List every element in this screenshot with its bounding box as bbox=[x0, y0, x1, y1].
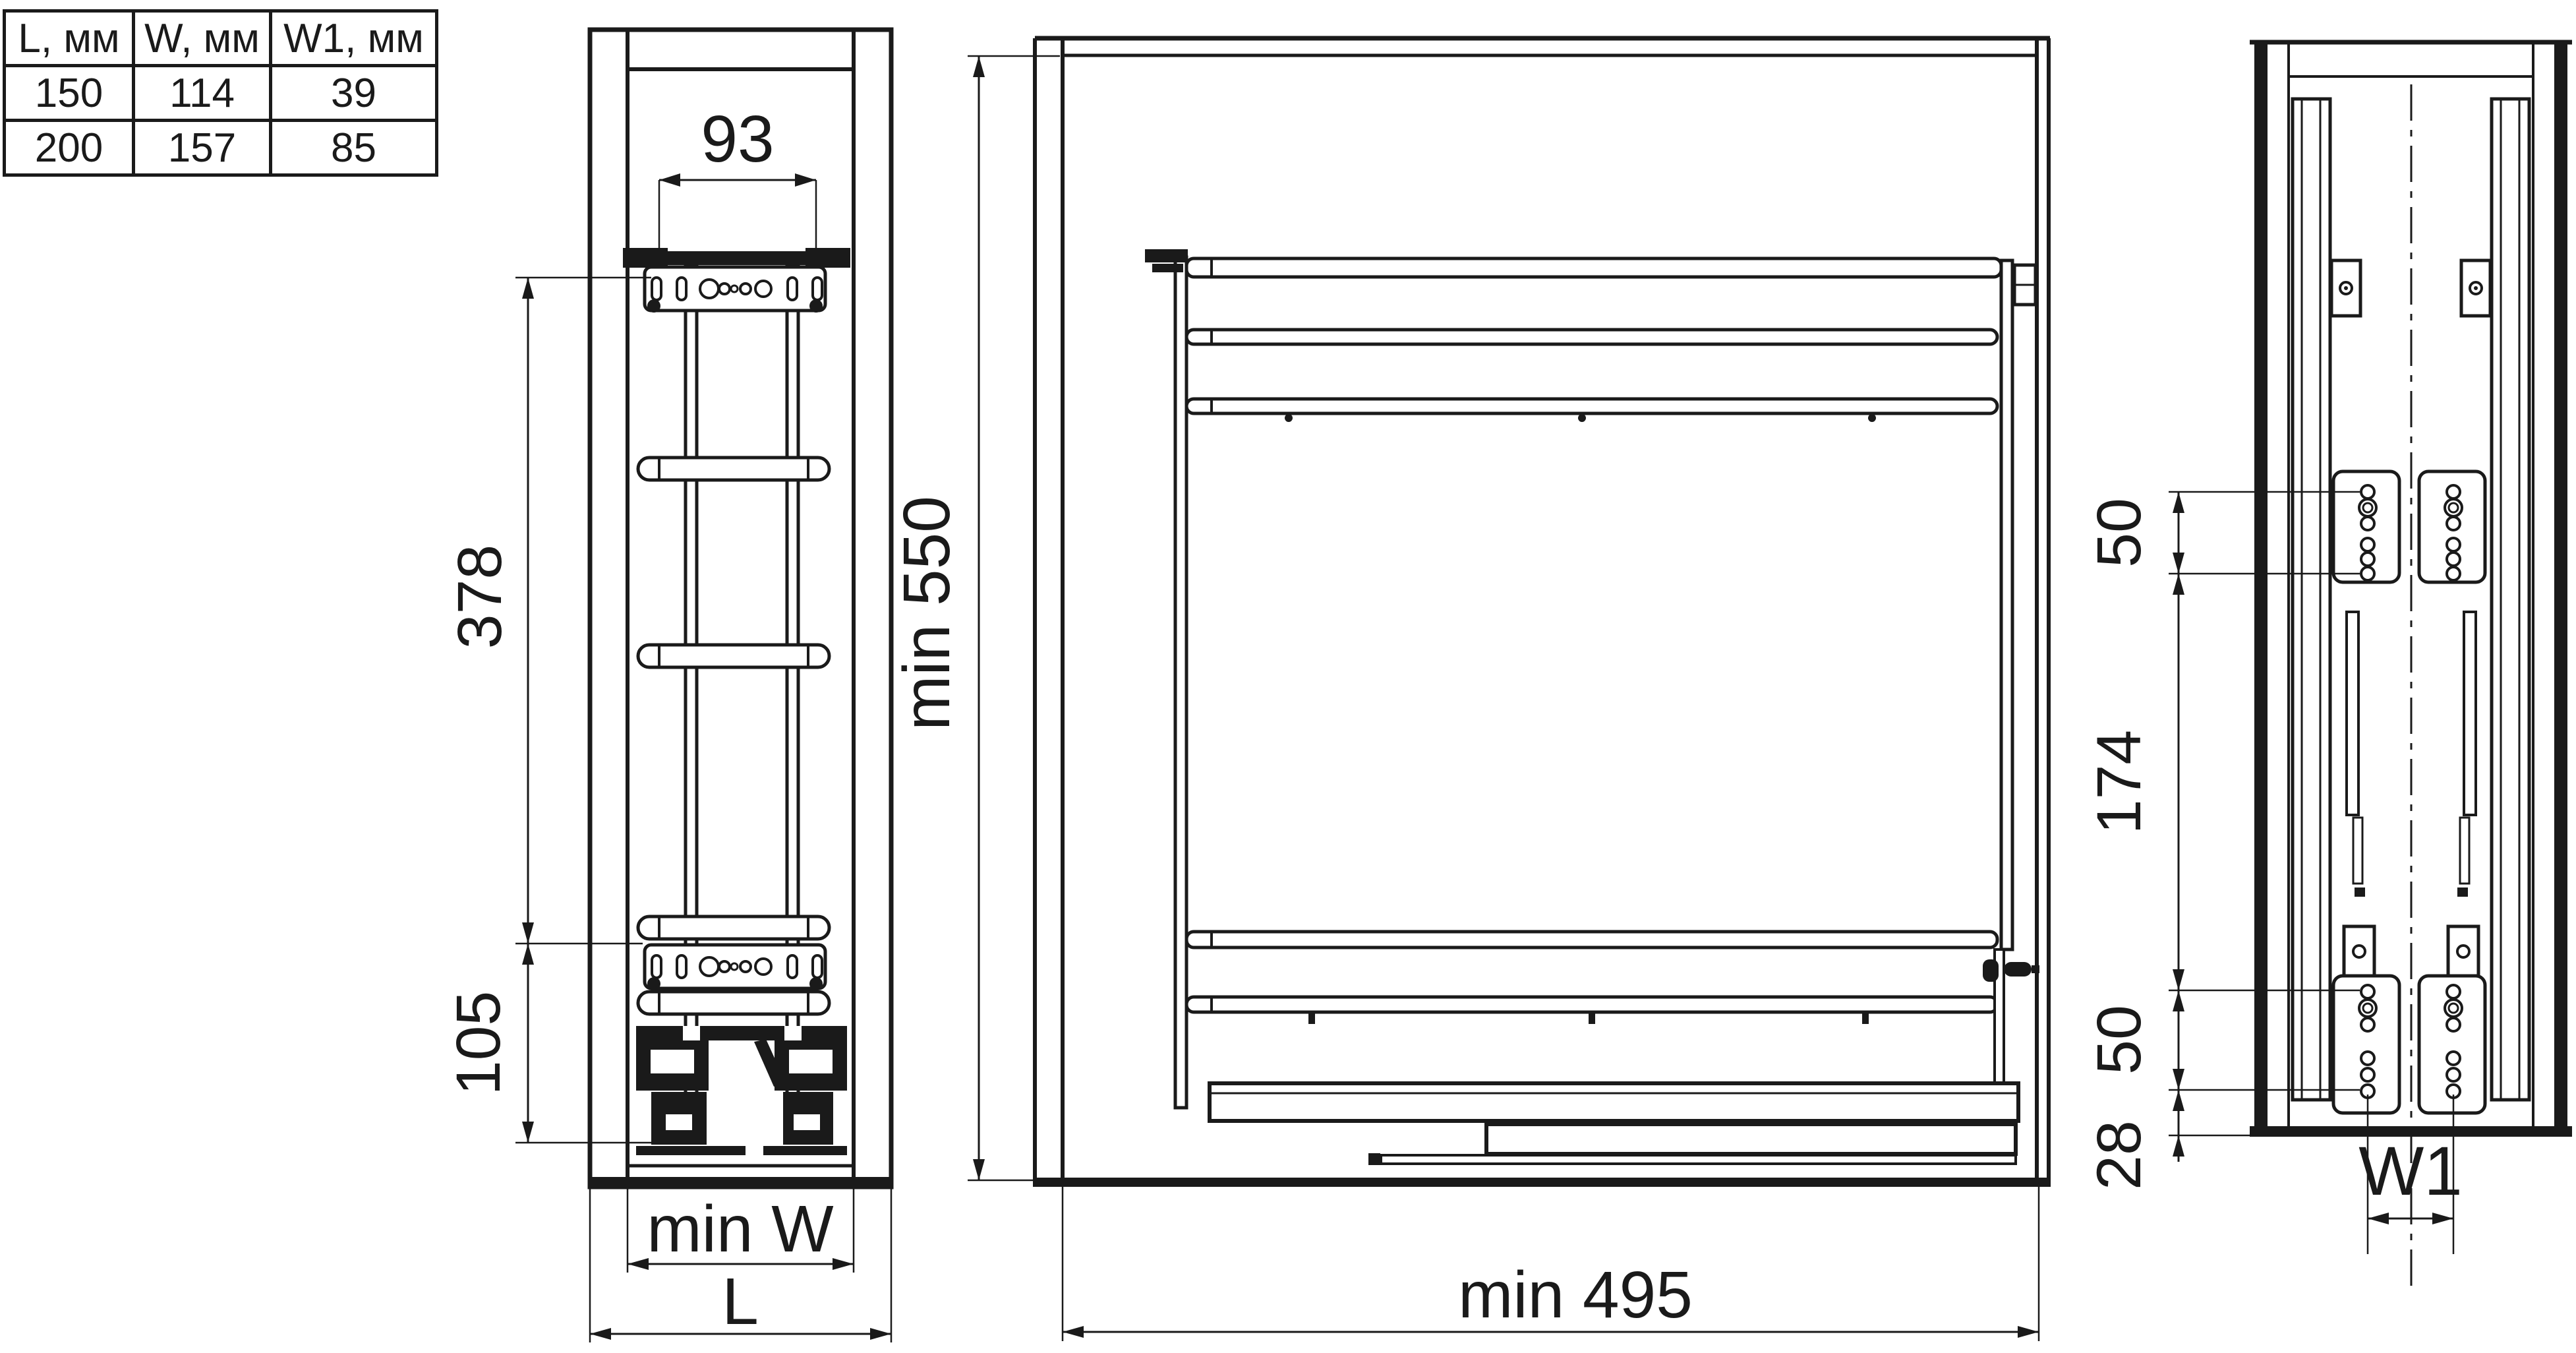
col-header-w: W, мм bbox=[134, 11, 271, 66]
col-header-l: L, мм bbox=[5, 11, 134, 66]
arrowhead bbox=[522, 278, 534, 299]
cross-bars bbox=[638, 458, 829, 1014]
arrowhead bbox=[2173, 1135, 2184, 1157]
cross-bar bbox=[638, 992, 829, 1014]
arrowhead bbox=[870, 1328, 891, 1340]
frame-rails bbox=[1186, 258, 2001, 1024]
slide-bottom-strip bbox=[763, 1146, 847, 1155]
extension-lines bbox=[968, 56, 1060, 1180]
lower-slide-rail bbox=[1486, 1124, 2016, 1154]
rail-clip bbox=[1308, 1012, 1315, 1024]
dim-50-bottom-label: 50 bbox=[2084, 1005, 2154, 1075]
dim-min-550-label: min 550 bbox=[890, 496, 964, 731]
cell-w1: 85 bbox=[271, 121, 437, 175]
cabinet-floor-band bbox=[590, 1177, 891, 1187]
arrowhead bbox=[2173, 990, 2184, 1011]
arrowhead bbox=[2432, 1213, 2453, 1224]
dim-min-495-label: min 495 bbox=[1458, 1258, 1693, 1332]
arrowhead bbox=[833, 1258, 854, 1270]
arrowhead bbox=[522, 944, 534, 965]
dim-378-label: 378 bbox=[445, 545, 515, 649]
side-view: min 550 min 495 bbox=[890, 38, 2050, 1341]
top-rail-end-block bbox=[623, 248, 668, 268]
slide-foot-notch bbox=[666, 1114, 692, 1130]
arrowhead bbox=[628, 1258, 649, 1270]
arrowhead bbox=[2173, 1069, 2184, 1090]
table-row: 150 114 39 bbox=[5, 66, 437, 121]
latch-block-hole bbox=[2353, 946, 2365, 957]
dim-w1: W1 bbox=[2358, 1095, 2463, 1254]
arrowhead bbox=[2173, 492, 2184, 513]
dim-93-label: 93 bbox=[701, 102, 774, 176]
rail bbox=[1186, 932, 1997, 947]
slide-bar-lower bbox=[2460, 818, 2469, 884]
rail-clip bbox=[1862, 1012, 1869, 1024]
cell-w1: 39 bbox=[271, 66, 437, 121]
dim-w1-label: W1 bbox=[2358, 1133, 2463, 1210]
rail-knob bbox=[1285, 414, 1293, 422]
lower-hole-plate-right bbox=[2419, 976, 2485, 1113]
rear-post bbox=[2001, 260, 2012, 949]
rail-clip bbox=[1589, 1012, 1595, 1024]
cross-bar bbox=[638, 645, 829, 667]
arrowhead bbox=[522, 1122, 534, 1143]
slide-gap bbox=[784, 1026, 802, 1040]
col-header-w1: W1, мм bbox=[271, 11, 437, 66]
rail-knob bbox=[1578, 414, 1586, 422]
arrowhead bbox=[590, 1328, 611, 1340]
cell-l: 200 bbox=[5, 121, 134, 175]
arrowhead bbox=[2173, 553, 2184, 574]
back-view: 50 174 50 28 W1 bbox=[2084, 41, 2572, 1286]
upper-slide-rail bbox=[1210, 1083, 2018, 1121]
slide-bar bbox=[2347, 612, 2358, 815]
slide-bar-lower bbox=[2353, 818, 2362, 884]
slide-housing-window bbox=[789, 1050, 833, 1073]
slide-bar-tick bbox=[2355, 887, 2365, 897]
rail bbox=[1186, 399, 1997, 413]
cell-w: 114 bbox=[134, 66, 271, 121]
rail bbox=[1186, 330, 1997, 344]
rail-profile bbox=[2492, 99, 2529, 1100]
upper-hole-plate-right bbox=[2419, 471, 2485, 582]
latch-pin bbox=[2004, 962, 2032, 977]
cell-w: 157 bbox=[134, 121, 271, 175]
side-wall-section bbox=[2554, 41, 2567, 1127]
dim-28-label: 28 bbox=[2084, 1120, 2154, 1190]
slide-top-bar bbox=[636, 1026, 847, 1040]
arrowhead bbox=[522, 922, 534, 944]
slide-bottom-strip bbox=[636, 1146, 746, 1155]
table-header-row: L, мм W, мм W1, мм bbox=[5, 11, 437, 66]
dim-378: 378 bbox=[445, 278, 651, 944]
bottom-mounting-bracket bbox=[645, 945, 825, 990]
top-mounting-bracket bbox=[645, 267, 825, 313]
extension-lines bbox=[515, 278, 651, 944]
front-post bbox=[1175, 257, 1186, 1108]
arrowhead bbox=[2173, 1090, 2184, 1111]
table-row: 200 157 85 bbox=[5, 121, 437, 175]
cabinet-floor-band bbox=[1035, 1178, 2049, 1187]
arrowhead bbox=[2368, 1213, 2389, 1224]
technical-drawing: 93 378 105 bbox=[0, 0, 2576, 1353]
arrowhead bbox=[2173, 969, 2184, 990]
bottom-slide-assembly bbox=[636, 1026, 847, 1155]
arrowhead bbox=[795, 173, 816, 187]
latch-flag bbox=[1983, 959, 1999, 982]
front-view: 93 378 105 bbox=[444, 30, 891, 1342]
dim-min-w: min W bbox=[628, 1187, 854, 1273]
lower-hole-plate-left bbox=[2333, 976, 2399, 1113]
arrowhead bbox=[973, 1159, 985, 1180]
dim-min-w-label: min W bbox=[647, 1192, 834, 1266]
cell-l: 150 bbox=[5, 66, 134, 121]
rail bbox=[1186, 997, 1997, 1012]
arrowhead bbox=[659, 173, 680, 187]
slide-gap bbox=[683, 1026, 700, 1040]
slide-bar bbox=[2464, 612, 2476, 815]
slide-runner-strip bbox=[1381, 1155, 2016, 1164]
front-wall-lines bbox=[1035, 38, 1063, 1187]
slide-bar-tick bbox=[2457, 887, 2468, 897]
cross-bar bbox=[638, 458, 829, 480]
arrowhead bbox=[973, 56, 985, 77]
dim-105-label: 105 bbox=[444, 991, 513, 1096]
rail bbox=[1186, 258, 2001, 277]
dim-93: 93 bbox=[659, 102, 816, 266]
dim-min-495: min 495 bbox=[1063, 1187, 2039, 1341]
drawing-page: 93 378 105 bbox=[0, 0, 2576, 1353]
slide-foot-notch bbox=[794, 1114, 820, 1130]
dim-50-top-label: 50 bbox=[2084, 498, 2154, 568]
back-wall-lines bbox=[2037, 38, 2049, 1187]
arrowhead bbox=[2173, 574, 2184, 595]
dim-174-label: 174 bbox=[2084, 730, 2154, 835]
front-hook-lower bbox=[1152, 264, 1183, 272]
arrowhead bbox=[1063, 1326, 1084, 1338]
front-hook bbox=[1145, 249, 1188, 262]
rail-profile bbox=[2293, 99, 2330, 1100]
runner-end-block bbox=[1368, 1153, 1380, 1165]
block-screw-center bbox=[2344, 286, 2348, 290]
cross-bar bbox=[638, 917, 829, 939]
latch-pin-tip bbox=[2032, 965, 2039, 973]
side-wall-section bbox=[2254, 41, 2268, 1127]
block-screw-center bbox=[2474, 286, 2478, 290]
dimensions-table: L, мм W, мм W1, мм 150 114 39 200 157 85 bbox=[3, 9, 438, 177]
rail-knob bbox=[1868, 414, 1876, 422]
upper-hole-plate-left bbox=[2333, 471, 2399, 582]
bottom-slide-rails bbox=[1210, 1083, 2018, 1165]
slide-housing-window bbox=[651, 1050, 694, 1073]
dim-l-label: L bbox=[722, 1265, 759, 1338]
arrowhead bbox=[2018, 1326, 2039, 1338]
latch-block-hole bbox=[2457, 946, 2469, 957]
top-rail-end-block bbox=[805, 248, 850, 268]
